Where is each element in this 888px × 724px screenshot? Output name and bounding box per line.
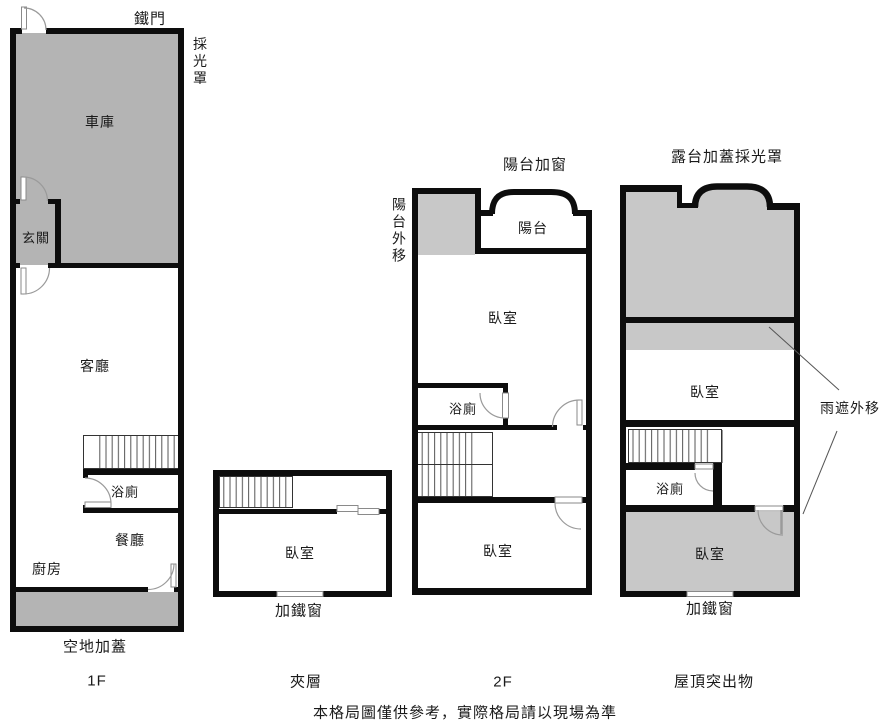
pointer-line [769, 327, 839, 390]
dining-room-label: 餐廳 [115, 530, 145, 550]
balcony-arch-wall [492, 192, 575, 214]
bathroom-door [85, 478, 111, 508]
balcony-extended-area [418, 194, 475, 255]
bedroom-label-roof-rear: 臥室 [695, 544, 725, 564]
entry-living-door [21, 268, 50, 294]
floor-plan-drawing [0, 0, 888, 724]
bathroom-door [480, 393, 509, 418]
bedroom-door [555, 497, 582, 529]
terrace-skylight-label: 露台加蓋採光罩 [671, 146, 783, 167]
floor2-stairs [417, 433, 493, 497]
terrace-area-main [625, 205, 795, 317]
bathroom-label-2f: 浴廁 [449, 399, 477, 418]
bedroom-label-mezz: 臥室 [285, 543, 315, 563]
balcony-extended-label: 陽台外移 [389, 197, 409, 265]
bathroom-label-roof: 浴廁 [656, 479, 684, 498]
pointer-line [803, 431, 837, 514]
skylight-label: 採光罩 [190, 37, 210, 88]
window-marker [358, 509, 379, 515]
bedroom-label-2f-front: 臥室 [488, 308, 518, 328]
kitchen-yard-door [148, 564, 176, 590]
bathroom-label-1f: 浴廁 [111, 482, 139, 501]
floor-plan-canvas: 鐵門 採光罩 車庫 玄關 客廳 浴廁 餐廳 廚房 空地加蓋 1F 臥室 加鐵窗 … [0, 0, 888, 724]
disclaimer-text: 本格局圖僅供參考，實際格局請以現場為準 [313, 702, 617, 723]
iron-window-label-roof: 加鐵窗 [686, 598, 734, 619]
entry-label: 玄關 [22, 228, 50, 247]
roof-title: 屋頂突出物 [674, 671, 754, 692]
iron-window-marker [277, 592, 323, 597]
floor2-gray-areas [418, 194, 475, 255]
yard-addition-area [16, 592, 178, 626]
hall-door [553, 400, 583, 427]
living-room-label: 客廳 [80, 356, 110, 376]
mezzanine-title: 夾層 [290, 671, 322, 692]
balcony-label: 陽台 [518, 218, 548, 238]
iron-window-label-mezz: 加鐵窗 [275, 600, 323, 621]
yard-addition-label: 空地加蓋 [63, 636, 127, 657]
floor1-stairs [84, 436, 179, 469]
bathroom-door [695, 464, 713, 491]
iron-gate-label: 鐵門 [134, 8, 166, 29]
iron-window-marker [687, 592, 733, 597]
bedroom-label-roof-front: 臥室 [690, 382, 720, 402]
roof-stairs [629, 430, 722, 463]
floor1-title: 1F [87, 673, 107, 690]
bedroom-label-2f-rear: 臥室 [483, 541, 513, 561]
main-gate-door [22, 7, 47, 30]
floor2-title: 2F [493, 674, 513, 691]
kitchen-label: 廚房 [32, 559, 62, 579]
rain-shelter-label: 雨遮外移 [820, 398, 880, 418]
window-marker [337, 506, 358, 512]
balcony-window-label: 陽台加窗 [503, 154, 567, 175]
mezzanine-stairs [220, 477, 293, 508]
floor2-doors [480, 393, 582, 529]
garage-label: 車庫 [85, 112, 115, 132]
